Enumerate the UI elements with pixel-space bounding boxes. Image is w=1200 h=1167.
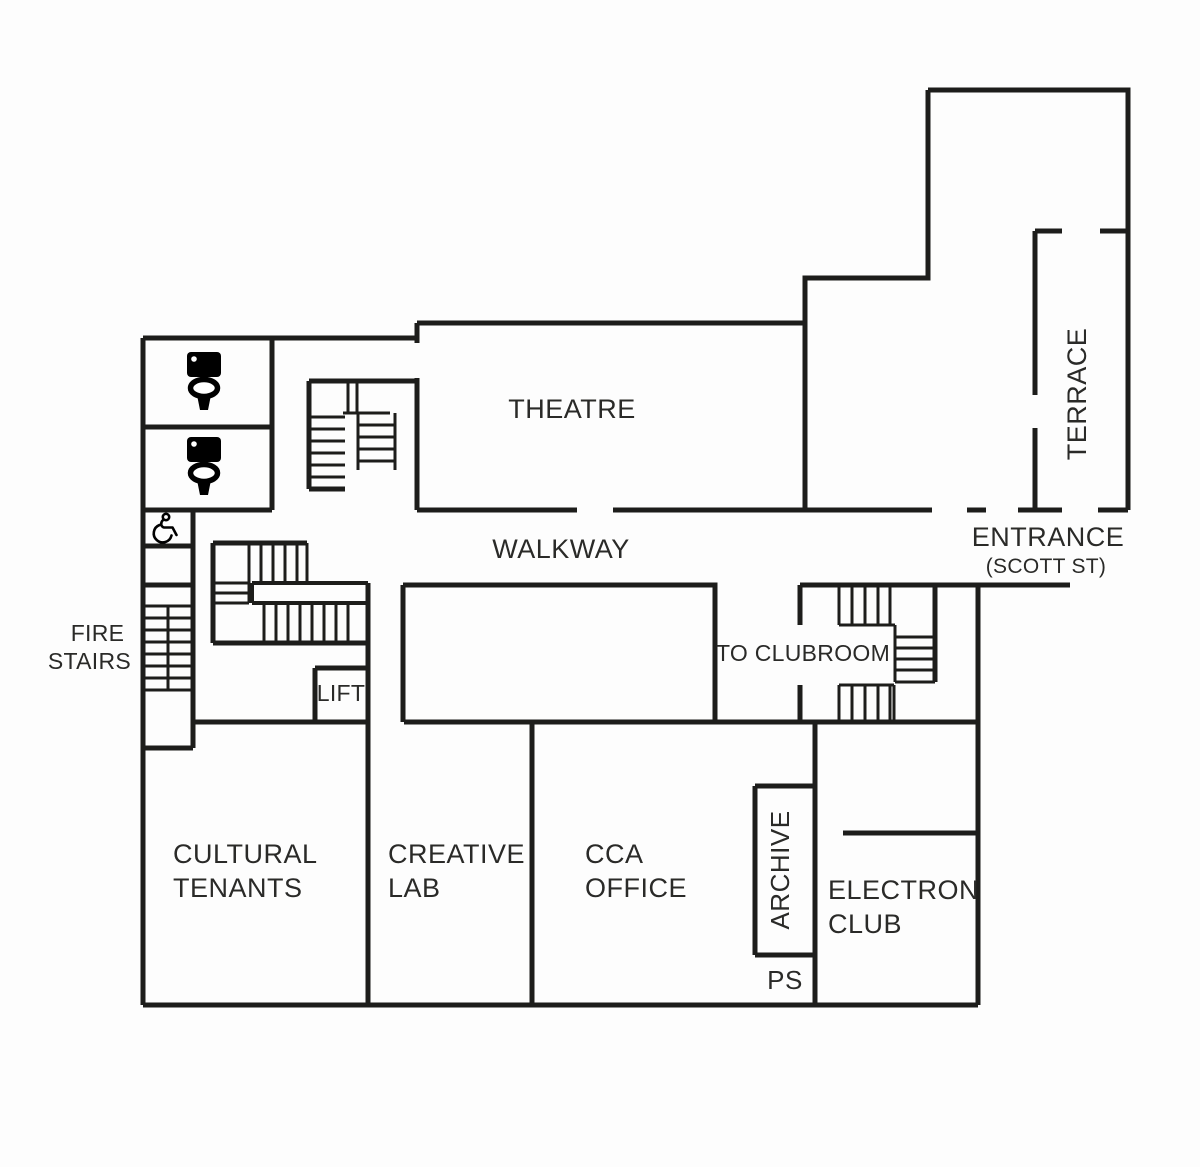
- room-label-walkway: WALKWAY: [492, 534, 630, 564]
- room-label-archive: ARCHIVE: [765, 810, 795, 929]
- room-label-theatre: THEATRE: [508, 394, 636, 424]
- lift-label: LIFT: [317, 680, 365, 706]
- entrance-label: ENTRANCE: [972, 522, 1125, 552]
- wheelchair-icon: [154, 514, 177, 543]
- to-clubroom-label: TO CLUBROOM: [716, 640, 890, 666]
- room-label-cultural-tenants: CULTURAL TENANTS: [173, 839, 325, 903]
- theatre-stairs: [309, 381, 395, 477]
- toilet-icon: [187, 437, 221, 495]
- room-label-cca-office: CCA OFFICE: [585, 839, 687, 903]
- room-label-creative-lab: CREATIVE LAB: [388, 839, 533, 903]
- fire-stairs-treads: [143, 606, 193, 690]
- entrance-sublabel: (SCOTT ST): [986, 555, 1106, 578]
- room-label-terrace: TERRACE: [1062, 328, 1092, 461]
- central-stairs: [213, 543, 348, 643]
- fire-stairs-label: FIRE STAIRS: [48, 620, 131, 674]
- floor-plan: THEATRE WALKWAY TERRACE ENTRANCE (SCOTT …: [0, 0, 1200, 1167]
- toilet-icon: [187, 352, 221, 410]
- floor-plan-canvas: THEATRE WALKWAY TERRACE ENTRANCE (SCOTT …: [0, 0, 1200, 1167]
- room-label-ps: PS: [767, 965, 803, 995]
- room-label-electron-club: ELECTRON CLUB: [828, 875, 987, 939]
